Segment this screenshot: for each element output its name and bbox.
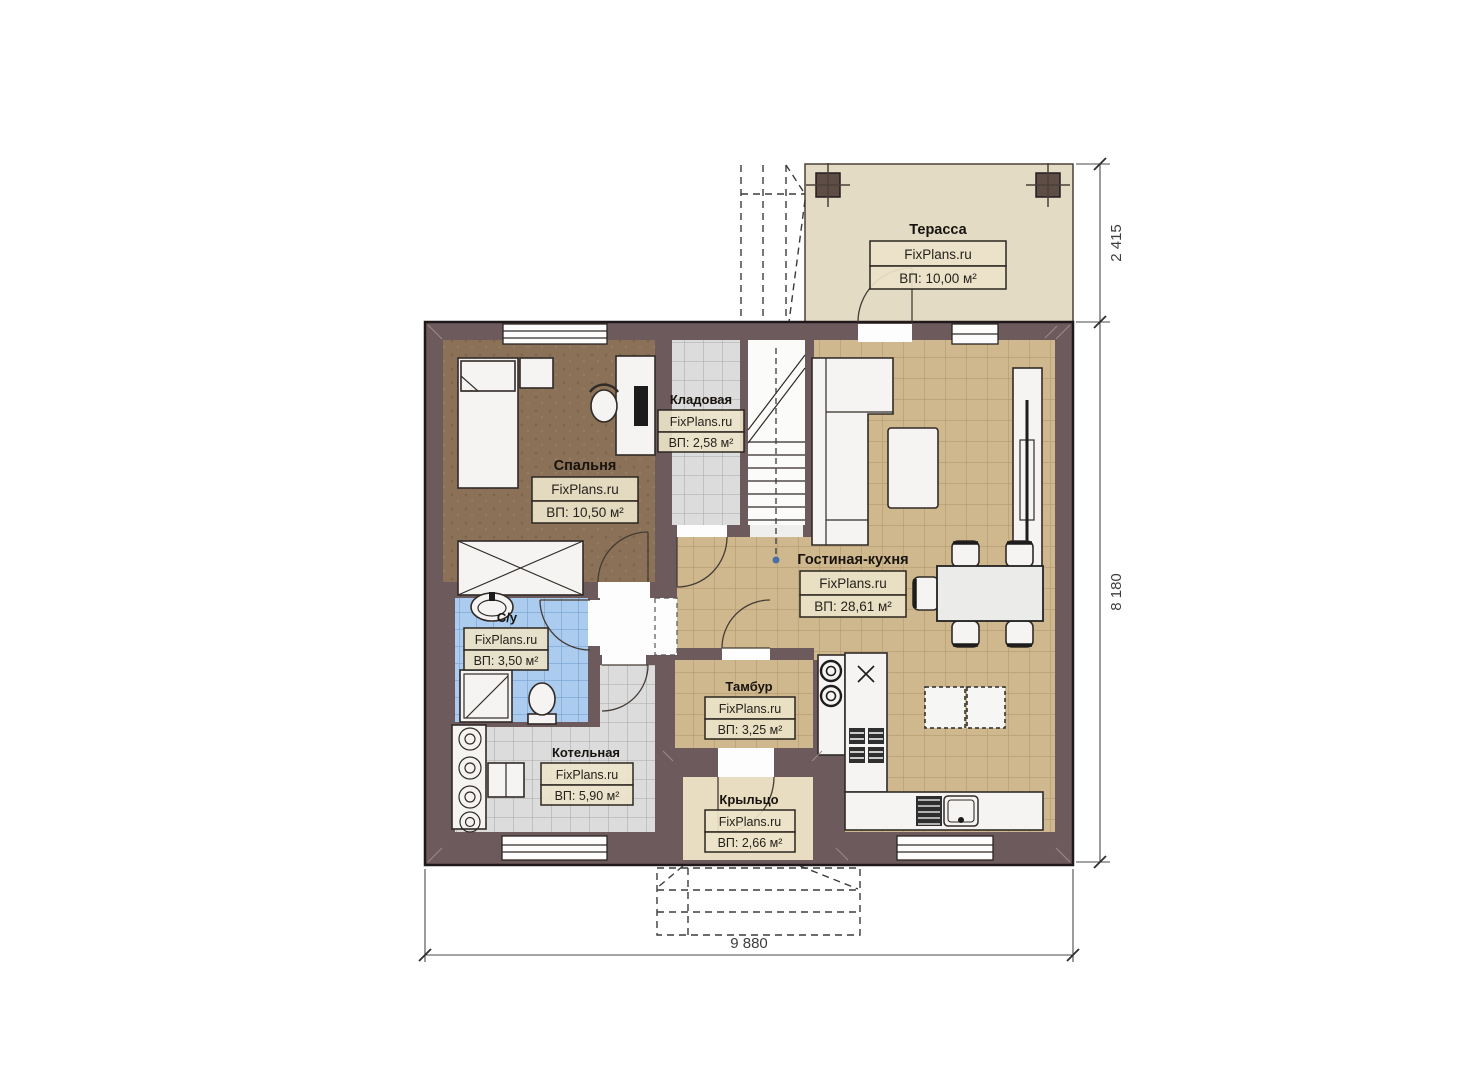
- window-living-top: [952, 324, 998, 344]
- bed: [458, 358, 518, 488]
- watermark-brand: FixPlans.ru: [670, 415, 733, 429]
- hallway-floor: [600, 598, 655, 655]
- porch-steps-outline: [657, 866, 860, 935]
- room-area-bedroom: ВП: 10,50 м²: [546, 505, 624, 520]
- dining-chair: [1006, 621, 1033, 647]
- dining-armchair: [913, 577, 939, 610]
- wardrobe: [458, 541, 583, 595]
- room-label-storage: Кладовая FixPlans.ru ВП: 2,58 м²: [658, 392, 744, 452]
- kitchen-island: [925, 687, 1005, 728]
- watermark-brand: FixPlans.ru: [475, 633, 538, 647]
- watermark-brand: FixPlans.ru: [719, 815, 782, 829]
- room-name-bathroom: С/у: [497, 610, 518, 625]
- room-label-living-kitchen: Гостиная-кухня FixPlans.ru ВП: 28,61 м²: [797, 552, 908, 617]
- room-area-porch: ВП: 2,66 м²: [718, 836, 783, 850]
- room-area-storage: ВП: 2,58 м²: [669, 436, 734, 450]
- terrace-steps-outline: [741, 165, 805, 322]
- room-area-vestibule: ВП: 3,25 м²: [718, 723, 783, 737]
- dining-chair: [1006, 541, 1033, 567]
- wall-chunk: [818, 755, 845, 832]
- dining-table: [937, 566, 1043, 621]
- room-name-vestibule: Тамбур: [725, 679, 772, 694]
- room-area-terrace: ВП: 10,00 м²: [899, 271, 977, 286]
- room-label-boiler: Котельная FixPlans.ru ВП: 5,90 м²: [541, 745, 633, 805]
- room-area-bathroom: ВП: 3,50 м²: [474, 654, 539, 668]
- dining-chair: [952, 621, 979, 647]
- floor-plan-drawing: 2 415 8 180 9 880 Терасса FixPlans.ru ВП…: [0, 0, 1473, 1080]
- watermark-brand: FixPlans.ru: [556, 768, 619, 782]
- toilet: [528, 683, 556, 724]
- monitor: [634, 386, 648, 426]
- room-name-boiler: Котельная: [552, 745, 620, 760]
- window-kitchen-bottom: [897, 836, 993, 860]
- window-boiler-bottom: [502, 836, 607, 860]
- floor-plan-page: 2 415 8 180 9 880 Терасса FixPlans.ru ВП…: [0, 0, 1473, 1080]
- shower: [460, 670, 512, 722]
- dimension-right-height: 8 180: [1108, 573, 1125, 611]
- watermark-brand: FixPlans.ru: [719, 702, 782, 716]
- watermark-brand: FixPlans.ru: [904, 247, 972, 262]
- room-area-boiler: ВП: 5,90 м²: [555, 789, 620, 803]
- dimension-terrace-depth: 2 415: [1108, 224, 1125, 262]
- hallway-threshold: [655, 598, 677, 655]
- window-bedroom-top: [503, 324, 607, 344]
- room-name-storage: Кладовая: [670, 392, 732, 407]
- kitchen-sink: [916, 796, 978, 826]
- room-name-bedroom: Спальня: [554, 458, 617, 474]
- room-name-living-kitchen: Гостиная-кухня: [797, 552, 908, 568]
- room-name-terrace: Терасса: [909, 222, 967, 238]
- room-area-living-kitchen: ВП: 28,61 м²: [814, 599, 892, 614]
- dimension-bottom-width: 9 880: [730, 935, 768, 952]
- room-name-porch: Крыльцо: [719, 792, 778, 807]
- desk: [616, 356, 655, 455]
- watermark-brand: FixPlans.ru: [551, 482, 619, 497]
- dining-chair: [952, 541, 979, 567]
- stair-direction-dot: [773, 557, 780, 564]
- watermark-brand: FixPlans.ru: [819, 576, 887, 591]
- coffee-table: [888, 428, 938, 508]
- nightstand: [520, 358, 553, 388]
